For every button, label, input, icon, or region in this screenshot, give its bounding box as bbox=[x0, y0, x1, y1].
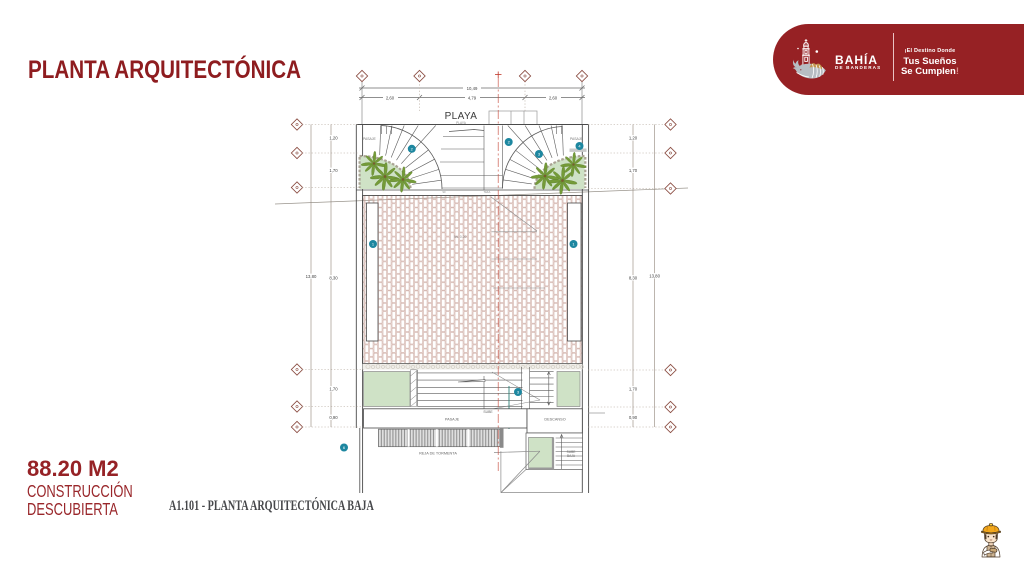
svg-text:8,30: 8,30 bbox=[329, 276, 338, 281]
svg-text:4,79: 4,79 bbox=[468, 95, 477, 100]
svg-text:1,70: 1,70 bbox=[329, 168, 338, 173]
svg-text:2,60: 2,60 bbox=[386, 95, 395, 100]
svg-text:90: 90 bbox=[443, 190, 446, 194]
svg-text:Nv. 0.20: Nv. 0.20 bbox=[454, 235, 466, 239]
svg-text:1,70: 1,70 bbox=[629, 168, 638, 173]
svg-text:13,80: 13,80 bbox=[306, 274, 317, 279]
svg-text:DESCANSO: DESCANSO bbox=[544, 418, 565, 422]
svg-text:2,60: 2,60 bbox=[549, 95, 558, 100]
svg-text:PASAJE: PASAJE bbox=[570, 137, 583, 141]
svg-text:13,80: 13,80 bbox=[649, 274, 660, 279]
svg-text:1,20: 1,20 bbox=[329, 136, 338, 141]
svg-text:1,70: 1,70 bbox=[629, 387, 638, 392]
svg-text:10,49: 10,49 bbox=[467, 86, 478, 91]
svg-text:0,90: 0,90 bbox=[329, 415, 338, 420]
svg-text:PASAJE: PASAJE bbox=[363, 137, 376, 141]
svg-text:PASAJE: PASAJE bbox=[445, 418, 460, 422]
svg-text:SUBE: SUBE bbox=[483, 410, 493, 414]
svg-text:0,90: 0,90 bbox=[629, 415, 638, 420]
svg-text:8,30: 8,30 bbox=[629, 276, 638, 281]
svg-text:1,20: 1,20 bbox=[629, 136, 638, 141]
svg-text:BAJA: BAJA bbox=[567, 454, 576, 458]
svg-text:REJA DE TORMENTA: REJA DE TORMENTA bbox=[419, 452, 457, 456]
svg-text:TEKA: TEKA bbox=[484, 190, 491, 194]
svg-text:1,70: 1,70 bbox=[329, 387, 338, 392]
